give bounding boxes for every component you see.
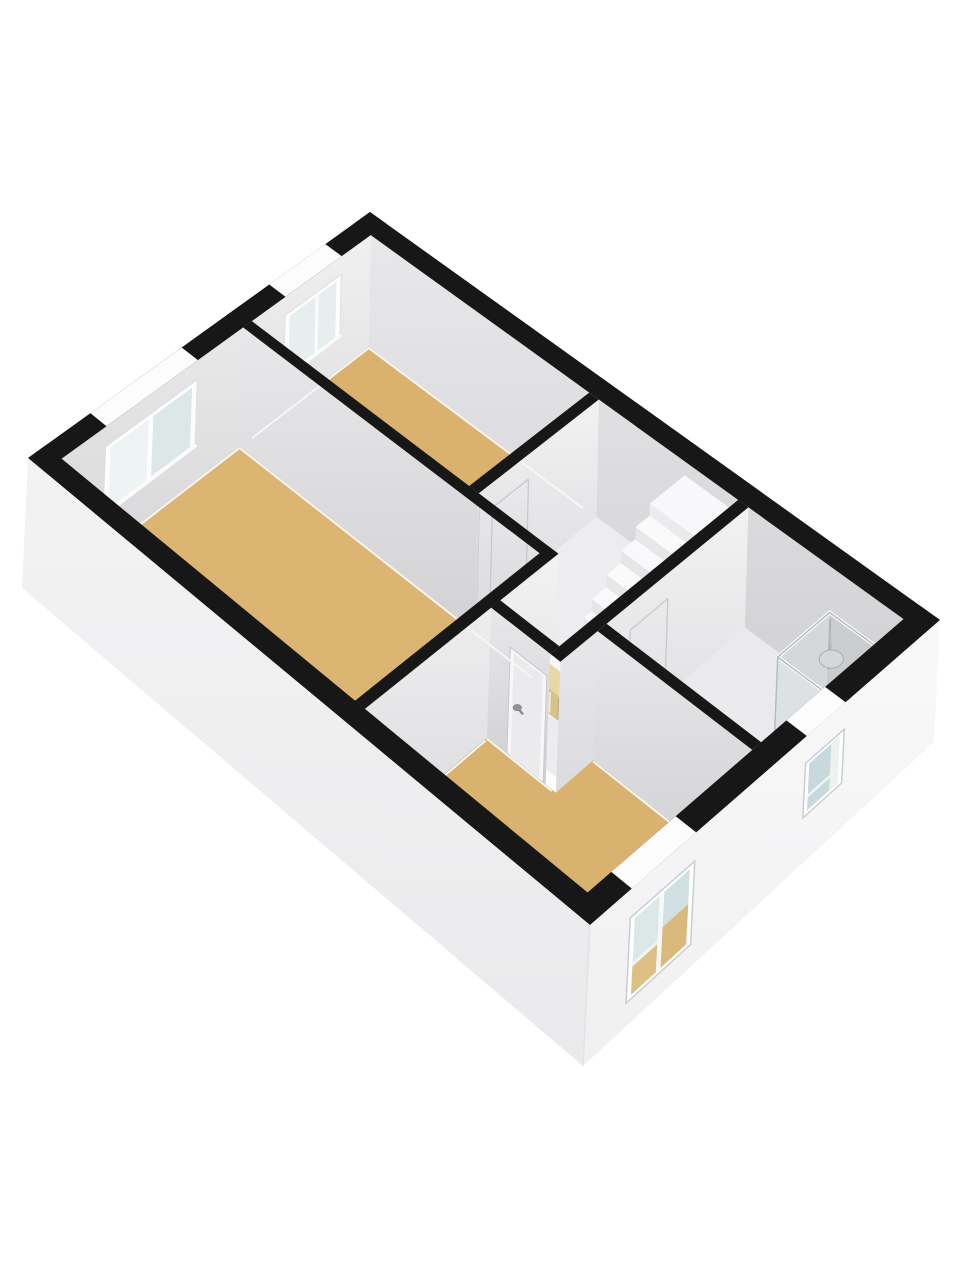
shower-head <box>819 650 843 668</box>
floorplan-canvas <box>0 0 960 1280</box>
floorplan-3d-view <box>0 0 960 1280</box>
radiator-slat-3 <box>549 693 550 712</box>
